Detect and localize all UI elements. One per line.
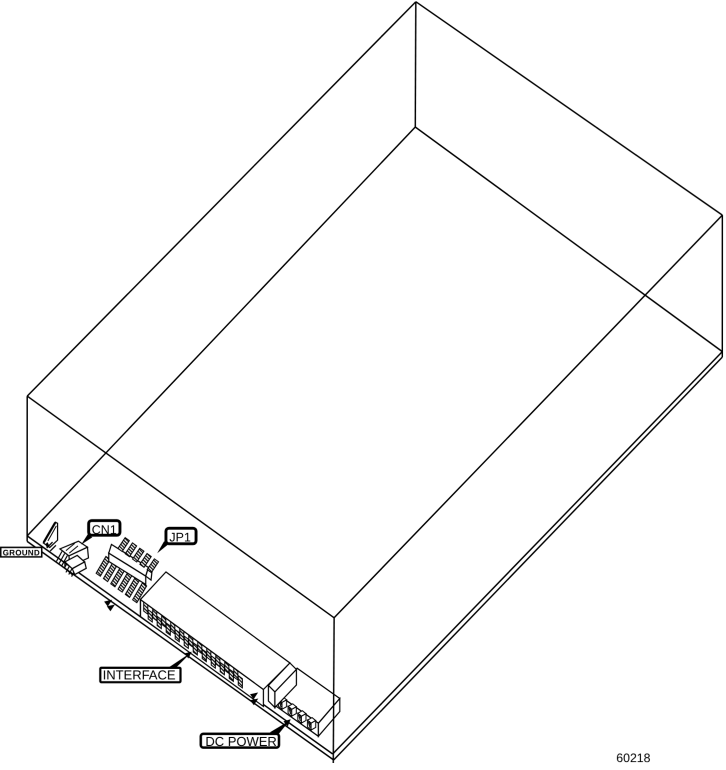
svg-text:CN1: CN1 [92, 523, 117, 537]
svg-text:JP1: JP1 [169, 530, 191, 544]
svg-text:GROUND: GROUND [3, 549, 40, 558]
svg-text:INTERFACE: INTERFACE [103, 668, 176, 683]
svg-text:DC POWER: DC POWER [205, 734, 277, 749]
svg-text:60218: 60218 [616, 751, 650, 765]
